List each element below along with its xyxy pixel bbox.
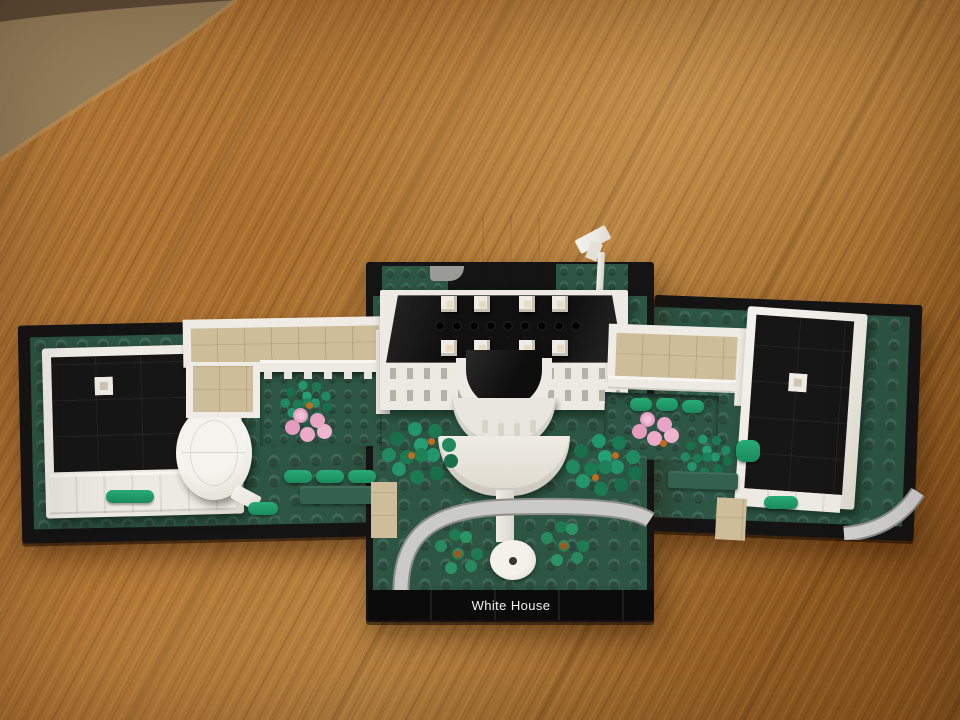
fountain-center [509,557,517,565]
east-wing-roof [744,315,854,495]
front-tree-left-branch [408,452,415,459]
chimney-4 [552,296,568,312]
right-courtyard [607,324,747,381]
raised-lawn-right [668,471,739,490]
west-wing-skylight [95,377,113,395]
hedge-right-garden-2 [656,398,678,411]
garden-tree-right [702,452,712,462]
branch-orange-right [660,440,667,447]
hedge-row-left-2 [316,470,344,483]
branch-orange-left [306,402,313,409]
driveway-tree-left-trunk [454,550,462,558]
left-pocket-tiles [193,366,253,412]
chimney-2 [474,296,490,312]
portico-column-3 [514,423,520,436]
cylinder-seam [190,420,238,486]
front-tree-left-branch-2 [428,438,435,445]
rose-bush-left [293,408,308,423]
flag-pole [596,252,605,294]
south-portico [446,350,562,498]
photo-lego-white-house: White House [0,0,960,720]
hedge-right-garden-1 [630,398,652,411]
hedge-left-plate [106,490,154,503]
hedge-row-left-1 [284,470,312,483]
front-tree-right-branch [612,452,619,459]
hedge-right-garden-3 [682,400,704,413]
portico-apron [438,436,570,496]
rose-bush-right [640,412,655,427]
main-building-attic [456,214,550,300]
floor-corner-beyond-table-edge [0,0,300,200]
tan-path-right [715,497,747,541]
hedge-left-small [248,502,278,515]
nameplate: White House [368,590,654,620]
flagpole-piece [570,228,618,298]
cylinder-seam-line [182,452,246,453]
front-tree-right-branch-2 [592,474,599,481]
portico-column-1 [482,420,488,433]
portico-column-4 [530,420,536,433]
chimney-3 [519,296,535,312]
chimney-1 [441,296,457,312]
rose-garden-left [260,372,382,446]
hedge-east-1 [764,496,798,509]
garden-columns [264,372,374,379]
road-corner-right [832,478,932,540]
main-roof-studs [432,318,580,338]
driveway-tree-right-trunk [560,542,568,550]
right-courtyard-tiles [615,333,738,380]
east-wing-skylight [788,373,807,392]
front-tree-right [598,460,612,474]
nameplate-label: White House [472,598,551,613]
front-tree-left [414,448,428,462]
portico-column-2 [498,423,504,436]
tan-path-left [371,482,397,538]
left-courtyard-pocket [186,362,260,418]
hedge-east-2 [736,440,760,462]
